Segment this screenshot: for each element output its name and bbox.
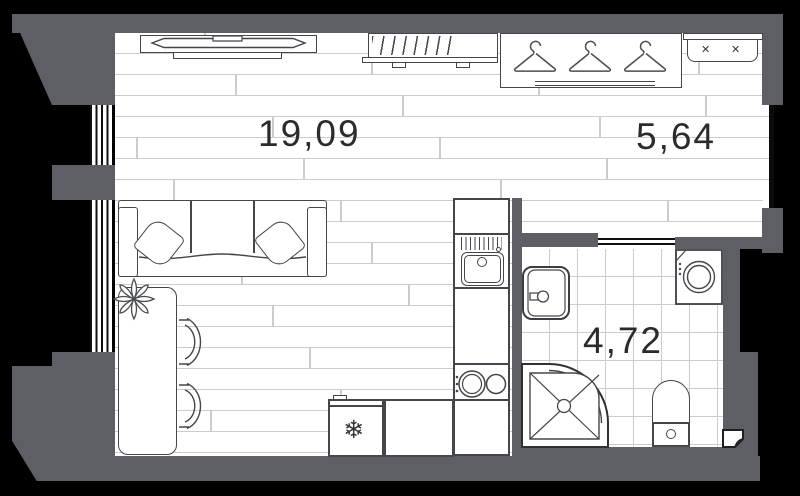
floor-plan: ✕ ✕ bbox=[0, 0, 800, 496]
hanger-icon bbox=[568, 40, 612, 76]
plank-seam bbox=[136, 138, 138, 159]
window-glazing-lower bbox=[90, 200, 112, 352]
hanger-icon bbox=[513, 40, 557, 76]
plank-seam bbox=[439, 138, 441, 159]
snowflake-icon: ❄ bbox=[343, 417, 364, 442]
kitchen-counter-divider bbox=[455, 233, 508, 235]
wall-window-pier bbox=[52, 165, 115, 200]
wall-bottom-left-upper bbox=[52, 352, 115, 366]
room-label-bathroom: 4,72 bbox=[583, 322, 663, 359]
plank-seam bbox=[599, 117, 601, 138]
radiator-fins bbox=[372, 36, 456, 55]
tv-shelf bbox=[173, 52, 282, 59]
washing-machine bbox=[675, 249, 723, 305]
wall-right-top bbox=[762, 33, 783, 105]
cooktop bbox=[453, 363, 510, 399]
bathroom-door-track bbox=[598, 243, 675, 245]
wardrobe-rail bbox=[535, 81, 655, 86]
sink-drain-dot bbox=[496, 247, 501, 252]
plank-seam bbox=[309, 348, 311, 369]
wall-bathroom-right-upper bbox=[723, 249, 740, 352]
bathroom-basin bbox=[522, 266, 570, 320]
kitchen-counter-divider bbox=[455, 399, 508, 401]
room-label-hallway: 5,64 bbox=[636, 118, 716, 155]
kitchen-counter-divider bbox=[455, 287, 508, 289]
radiator-foot-left bbox=[392, 62, 406, 68]
toilet-bowl bbox=[652, 380, 690, 426]
plank-seam bbox=[667, 201, 669, 222]
plank-seam bbox=[235, 75, 237, 96]
bathroom-door-gap bbox=[598, 234, 675, 249]
plank-seam bbox=[402, 96, 404, 117]
tv-icon bbox=[140, 35, 317, 53]
plank-seam bbox=[173, 180, 175, 201]
radiator-shelf bbox=[362, 57, 498, 63]
plank-seam bbox=[408, 285, 410, 306]
vent-hatch bbox=[722, 429, 744, 448]
toilet-button bbox=[666, 429, 676, 439]
wall-bathroom-top-right bbox=[675, 237, 783, 249]
plank-seam bbox=[272, 306, 274, 327]
kitchen-counter-bottom bbox=[384, 399, 454, 457]
plank-seam bbox=[606, 159, 608, 180]
wall-bathroom-top-left bbox=[512, 233, 598, 247]
plank-seam bbox=[340, 201, 342, 222]
chair bbox=[177, 317, 209, 367]
plank-seam bbox=[303, 159, 305, 180]
chair bbox=[177, 382, 209, 430]
room-label-living: 19,09 bbox=[258, 115, 361, 152]
wall-top bbox=[12, 14, 783, 33]
plank-seam bbox=[705, 96, 707, 117]
plant-icon bbox=[112, 277, 156, 321]
bench-mark-icon: ✕ bbox=[731, 44, 740, 55]
entry-door bbox=[769, 105, 774, 208]
hanger-icon bbox=[623, 40, 667, 76]
bathroom-door-leaf bbox=[598, 238, 675, 240]
bench-body bbox=[687, 39, 758, 62]
window-glazing-upper bbox=[90, 105, 112, 165]
shower bbox=[521, 363, 610, 448]
bench-mark-icon: ✕ bbox=[701, 44, 710, 55]
wall-top-left-angled bbox=[12, 33, 115, 105]
plank-seam bbox=[210, 411, 212, 432]
wall-bathroom-bottom bbox=[512, 447, 758, 461]
kitchen-faucet bbox=[477, 257, 487, 267]
fridge-door-line bbox=[330, 405, 382, 407]
plank-seam bbox=[371, 243, 373, 264]
radiator-foot-right bbox=[456, 62, 470, 68]
